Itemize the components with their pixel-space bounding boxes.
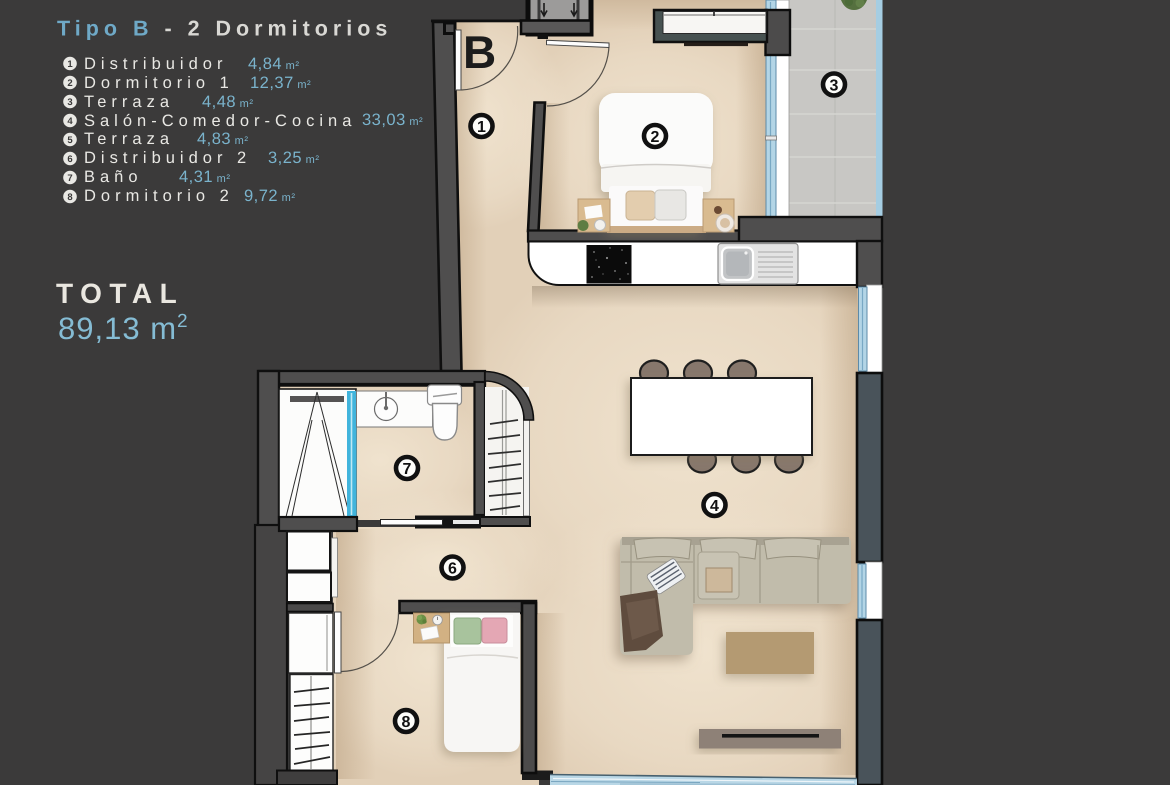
svg-text:TOTAL: TOTAL xyxy=(56,278,184,309)
svg-text:Baño: Baño xyxy=(84,168,143,186)
svg-text:7: 7 xyxy=(403,461,412,478)
svg-text:6: 6 xyxy=(67,154,72,165)
svg-text:3,25 m²: 3,25 m² xyxy=(268,149,320,167)
svg-text:7: 7 xyxy=(67,173,72,184)
svg-text:4,31 m²: 4,31 m² xyxy=(179,168,231,186)
svg-text:3: 3 xyxy=(830,78,839,95)
svg-text:12,37 m²: 12,37 m² xyxy=(250,74,311,92)
svg-text:4,48 m²: 4,48 m² xyxy=(202,93,254,111)
svg-text:Salón-Comedor-Cocina: Salón-Comedor-Cocina xyxy=(84,112,356,130)
svg-text:33,03 m²: 33,03 m² xyxy=(362,111,423,129)
svg-text:4: 4 xyxy=(710,498,719,515)
svg-text:Distribuidor: Distribuidor xyxy=(84,55,227,73)
svg-text:1: 1 xyxy=(67,59,73,70)
svg-text:Dormitorio 1: Dormitorio 1 xyxy=(84,74,234,92)
svg-text:B: B xyxy=(463,26,496,78)
svg-text:Tipo B - 2 Dormitorios: Tipo B - 2 Dormitorios xyxy=(57,17,392,41)
svg-text:4: 4 xyxy=(67,116,73,127)
svg-text:5: 5 xyxy=(67,135,73,146)
svg-text:4,83 m²: 4,83 m² xyxy=(197,130,249,148)
svg-text:2: 2 xyxy=(67,78,72,89)
svg-text:4,84 m²: 4,84 m² xyxy=(248,55,300,73)
svg-text:1: 1 xyxy=(477,119,486,136)
svg-text:8: 8 xyxy=(402,714,411,731)
svg-text:8: 8 xyxy=(67,192,72,203)
svg-text:9,72 m²: 9,72 m² xyxy=(244,187,296,205)
svg-text:Terraza: Terraza xyxy=(84,130,174,148)
svg-text:Distribuidor 2: Distribuidor 2 xyxy=(84,149,251,167)
svg-text:6: 6 xyxy=(448,561,457,578)
svg-text:89,13 m2: 89,13 m2 xyxy=(58,311,189,346)
svg-text:3: 3 xyxy=(67,97,72,108)
svg-text:Terraza: Terraza xyxy=(84,93,174,111)
svg-text:2: 2 xyxy=(651,129,660,146)
svg-text:Dormitorio 2: Dormitorio 2 xyxy=(84,187,234,205)
